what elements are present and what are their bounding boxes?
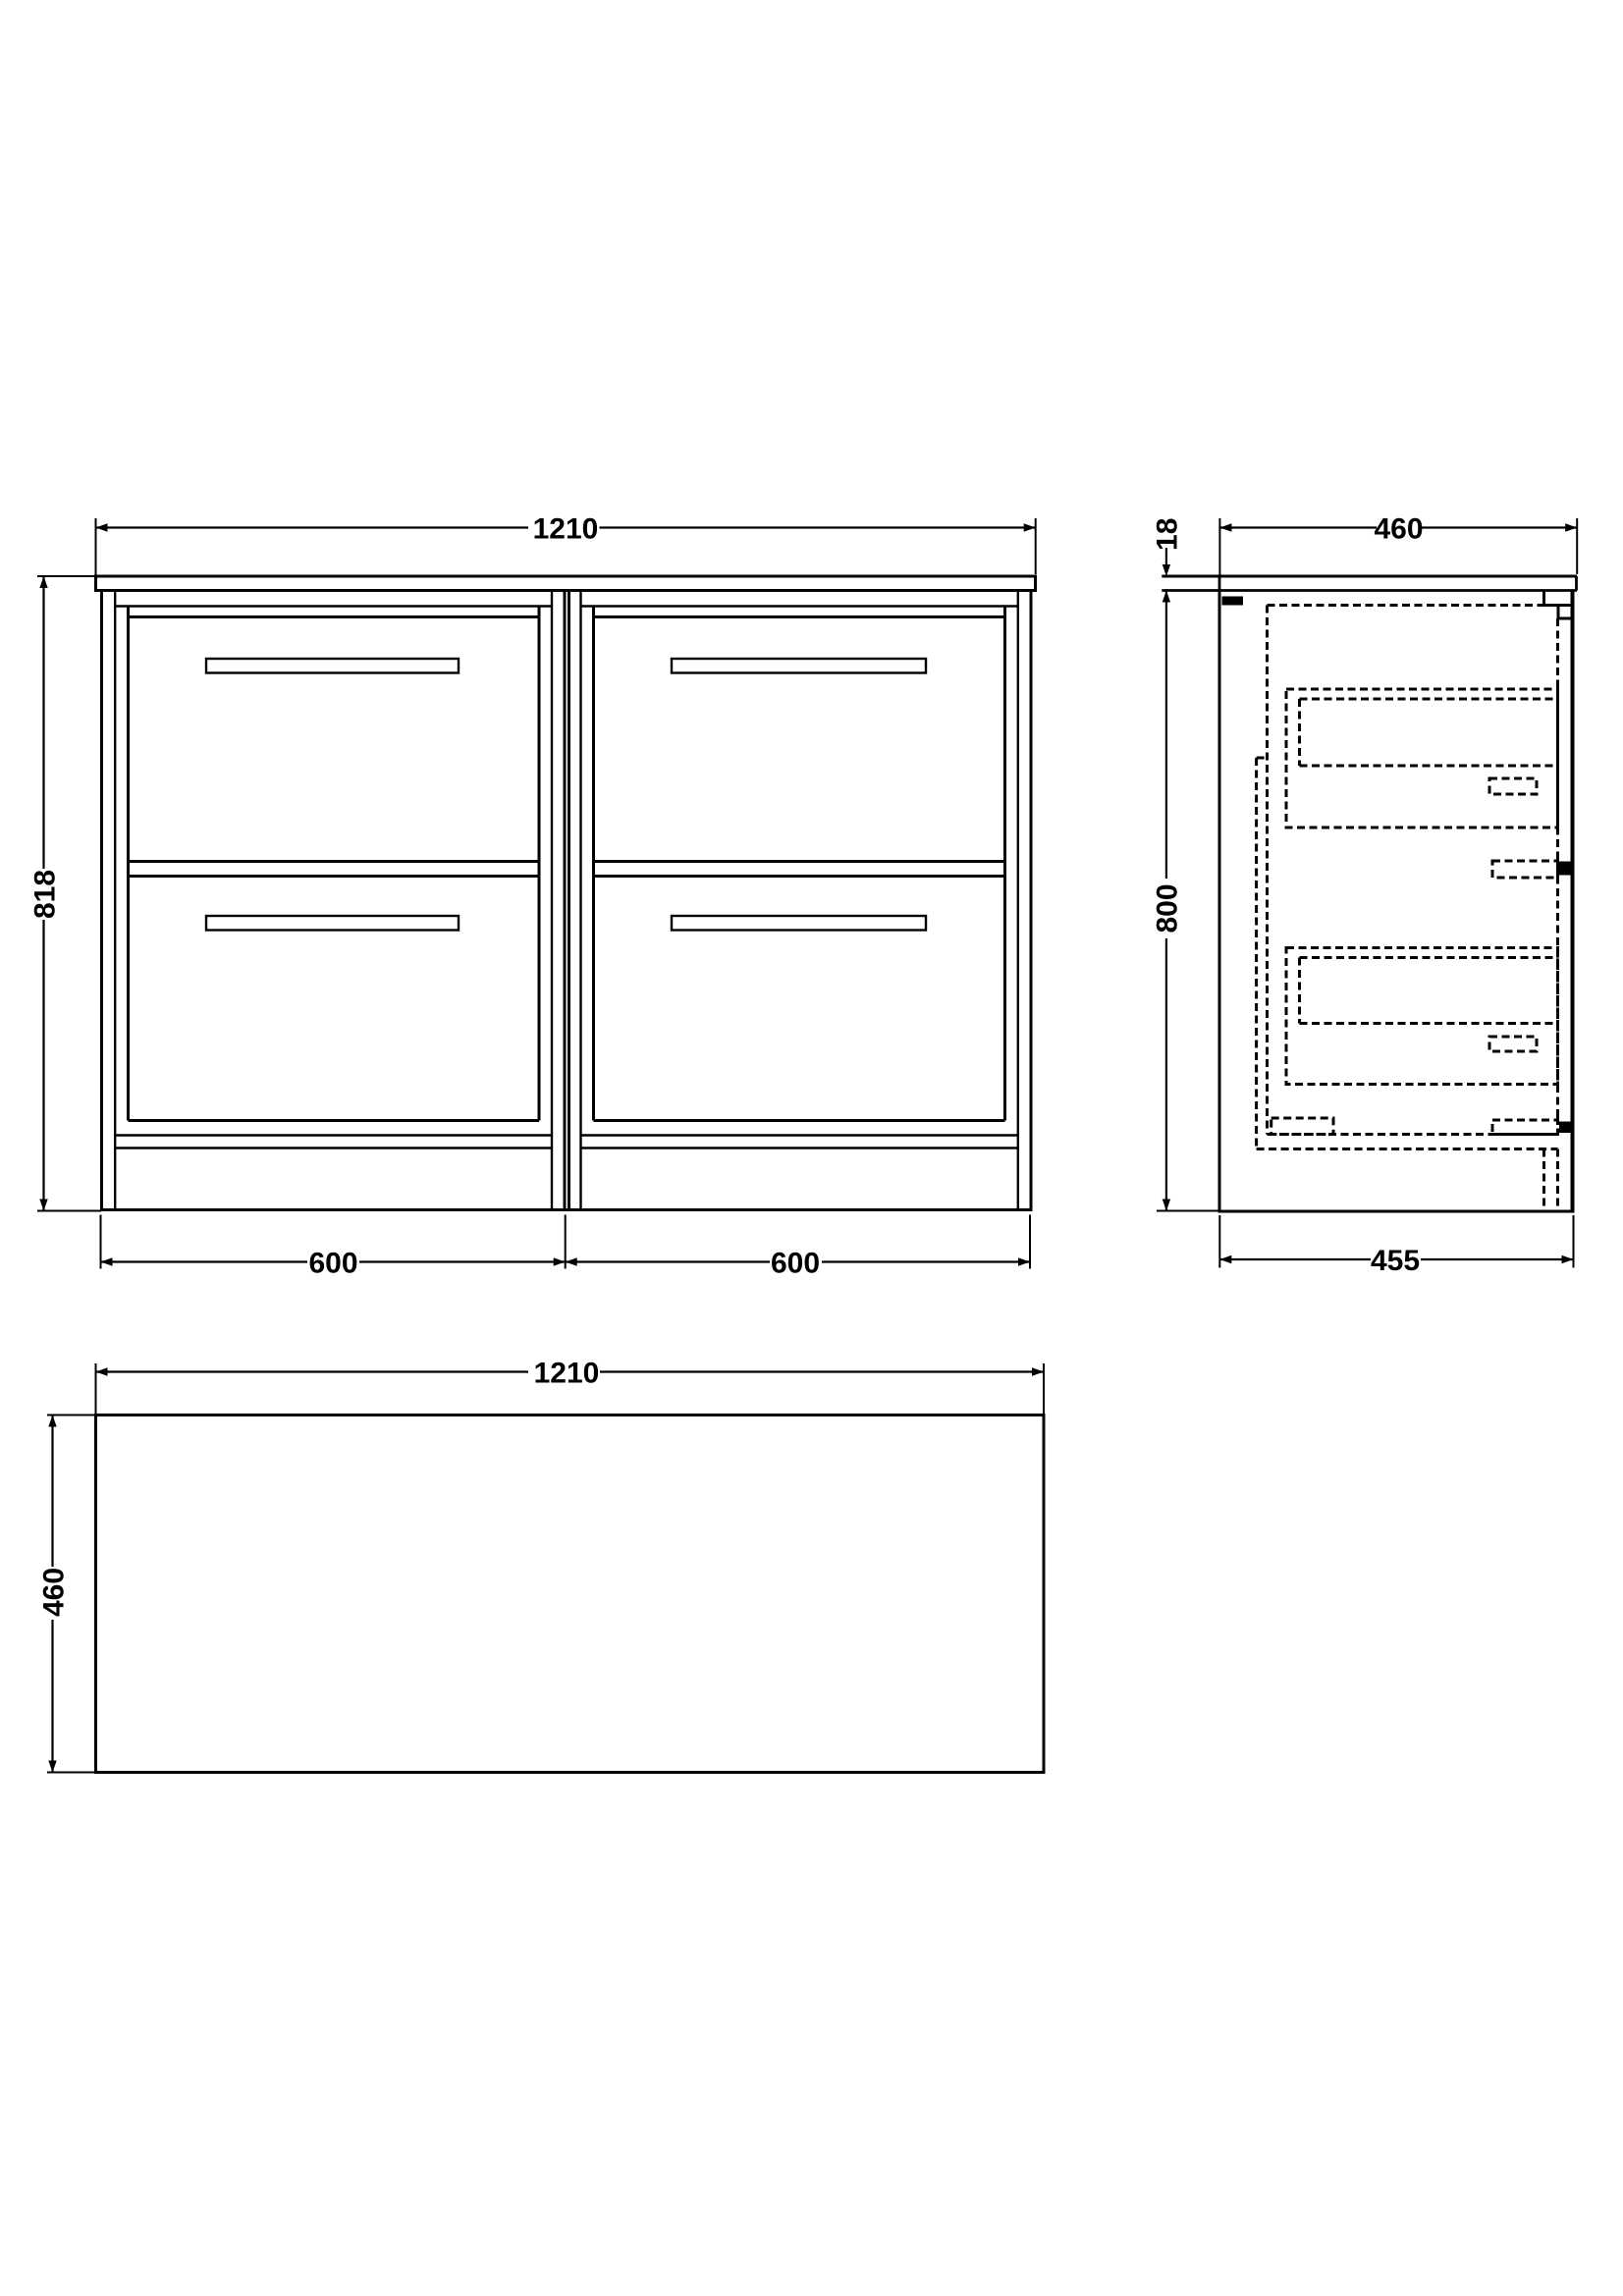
svg-text:600: 600 [308, 1247, 357, 1279]
svg-text:1210: 1210 [533, 512, 599, 545]
svg-text:1210: 1210 [534, 1357, 600, 1389]
svg-text:600: 600 [771, 1247, 820, 1279]
svg-text:455: 455 [1371, 1245, 1420, 1277]
svg-text:18: 18 [1152, 518, 1184, 551]
svg-text:460: 460 [1374, 512, 1423, 545]
svg-text:818: 818 [28, 870, 61, 919]
svg-text:460: 460 [37, 1568, 70, 1617]
svg-text:800: 800 [1152, 883, 1184, 933]
